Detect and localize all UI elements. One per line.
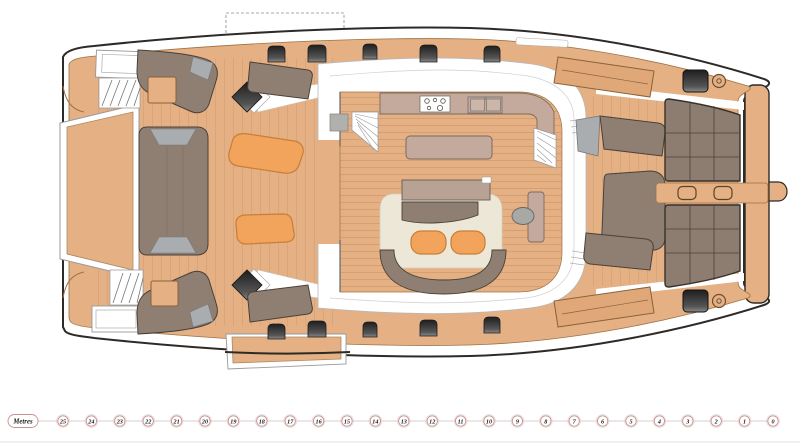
trampoline-port [665, 99, 740, 181]
deck-hatch [308, 321, 326, 337]
sink [468, 97, 502, 113]
deck-plan-page: 2524232221201918171615141312111098765432… [0, 0, 800, 448]
windlass-starboard [713, 295, 726, 308]
aft-swim-platform [60, 104, 139, 278]
seat-cushion [411, 231, 446, 254]
centre-spine [656, 183, 768, 203]
scale-tick-label: 0 [771, 418, 774, 425]
scale-tick-label: 2 [714, 418, 718, 425]
aft-central-sofa [139, 127, 208, 255]
windlass-port [713, 75, 726, 88]
scale-tick-label: 16 [316, 418, 323, 425]
scale-tick-label: 18 [259, 418, 265, 425]
deck-hatch [363, 44, 377, 59]
galley-appliance [330, 114, 348, 131]
spine-fitting [714, 187, 732, 200]
bowsprit [769, 182, 787, 201]
forward-seat-starboard [584, 233, 653, 270]
scale-tick-label: 15 [344, 418, 350, 425]
deck-hatch [420, 320, 437, 336]
scale-tick-label: 13 [401, 418, 407, 425]
scale-tick-label: 1 [743, 418, 746, 425]
cockpit-table-port [148, 77, 176, 103]
scale-tick-label: 10 [486, 418, 492, 425]
saloon-door-opening [317, 140, 343, 244]
seat-cushion [451, 231, 485, 254]
scale-tick-label: 9 [516, 418, 519, 425]
scale-tick-label: 22 [144, 418, 151, 425]
scale-unit-label: Metres [12, 418, 33, 425]
sunpad-starboard [236, 214, 294, 244]
deck-hatch [308, 45, 326, 62]
foredeck-hatch-port [683, 70, 708, 92]
stern-boarding-platform [225, 334, 350, 369]
scale-tick-label: 19 [230, 418, 236, 425]
deck-hatch [363, 322, 377, 337]
scale-tick-label: 17 [287, 418, 294, 425]
nav-seat [512, 208, 534, 225]
deck-hatch [268, 324, 285, 339]
scale-tick-label: 21 [173, 418, 180, 425]
saloon [317, 58, 586, 314]
scale-tick-label: 24 [87, 418, 94, 425]
scale-tick-label: 12 [429, 418, 435, 425]
deck-hatch [268, 46, 285, 62]
scale-tick-label: 8 [544, 418, 547, 425]
deck-hatch [484, 46, 500, 62]
scale-ticks: 2524232221201918171615141312111098765432… [38, 415, 779, 428]
scale-tick-label: 23 [116, 418, 123, 425]
stove [420, 96, 450, 112]
scale-tick-label: 5 [629, 418, 632, 425]
catamaran-deck-plan: 2524232221201918171615141312111098765432… [0, 0, 800, 448]
scale-tick-label: 25 [59, 418, 66, 425]
trampoline-starboard [665, 205, 740, 287]
scale-tick-label: 11 [458, 418, 464, 425]
deck-hatch [420, 45, 437, 62]
deck-hatch [484, 317, 500, 333]
scale-tick-label: 14 [372, 418, 378, 425]
scale-tick-label: 3 [685, 418, 689, 425]
sideboard [402, 180, 490, 200]
scale-tick-label: 4 [657, 418, 661, 425]
scale-bar: 2524232221201918171615141312111098765432… [8, 415, 779, 428]
cockpit-table-starboard [151, 281, 178, 306]
spine-fitting [678, 187, 696, 200]
foredeck-hatch-starboard [683, 290, 708, 312]
scale-tick-label: 20 [201, 418, 208, 425]
galley-island [406, 136, 492, 159]
